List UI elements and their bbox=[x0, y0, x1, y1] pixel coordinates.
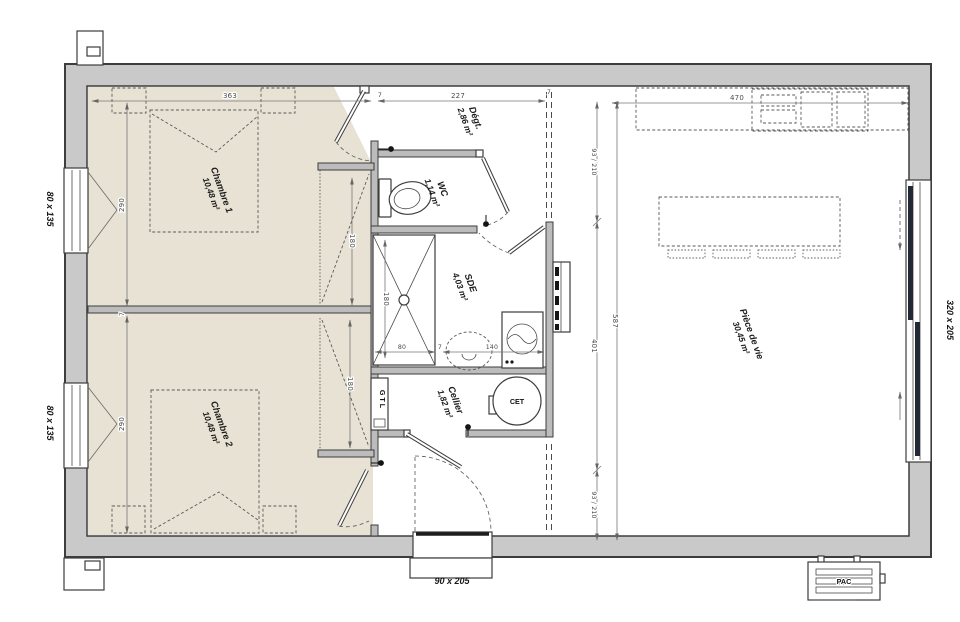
dim-290-ch1: 290 bbox=[118, 198, 126, 212]
wall-radiator bbox=[553, 262, 570, 332]
washing-machine bbox=[502, 312, 543, 368]
dim-363: 363 bbox=[223, 92, 237, 100]
floor-plan-page: CET GTL PAC bbox=[0, 0, 960, 622]
dim-93-210-bottom: 93 / 210 bbox=[590, 491, 597, 518]
label-bay-window: 320 x 205 bbox=[945, 300, 955, 341]
downspout-top-left bbox=[77, 31, 103, 65]
dim-470: 470 bbox=[730, 94, 744, 102]
electrical-box-gtl: GTL bbox=[371, 378, 388, 430]
dim-227: 227 bbox=[451, 92, 465, 100]
wardrobe-1-wall bbox=[318, 163, 374, 170]
wardrobe-2-wall bbox=[318, 450, 374, 457]
dim-587: 587 bbox=[611, 314, 619, 328]
dim-80: 80 bbox=[398, 344, 406, 351]
heat-pump-pac: PAC bbox=[808, 556, 885, 600]
dim-180-ward1: 180 bbox=[348, 234, 356, 248]
dim-7: 7 bbox=[119, 312, 126, 316]
dim-180-ward2: 180 bbox=[346, 377, 354, 391]
floor-plan-drawing: CET GTL PAC bbox=[0, 0, 960, 622]
dim-180-shower: 180 bbox=[382, 292, 390, 306]
dim-7: 7 bbox=[378, 92, 382, 99]
downspout-bottom-left bbox=[64, 558, 104, 590]
pac-label: PAC bbox=[837, 577, 852, 586]
dim-7: 7 bbox=[438, 344, 442, 351]
dim-93-210-top: 93 / 210 bbox=[590, 148, 597, 175]
dim-7: 7 bbox=[547, 89, 551, 96]
label-entry-door: 90 x 205 bbox=[434, 576, 470, 586]
label-window-left-top: 80 x 135 bbox=[45, 191, 55, 227]
gtl-label: GTL bbox=[378, 390, 387, 410]
entry-landing bbox=[410, 558, 492, 578]
dim-401: 401 bbox=[590, 339, 598, 353]
sliding-panel bbox=[908, 186, 913, 320]
dim-290-ch2: 290 bbox=[118, 417, 126, 431]
label-window-left-bottom: 80 x 135 bbox=[45, 405, 55, 441]
sliding-panel bbox=[915, 322, 920, 456]
dim-140: 140 bbox=[486, 344, 498, 351]
cet-label: CET bbox=[510, 397, 525, 406]
